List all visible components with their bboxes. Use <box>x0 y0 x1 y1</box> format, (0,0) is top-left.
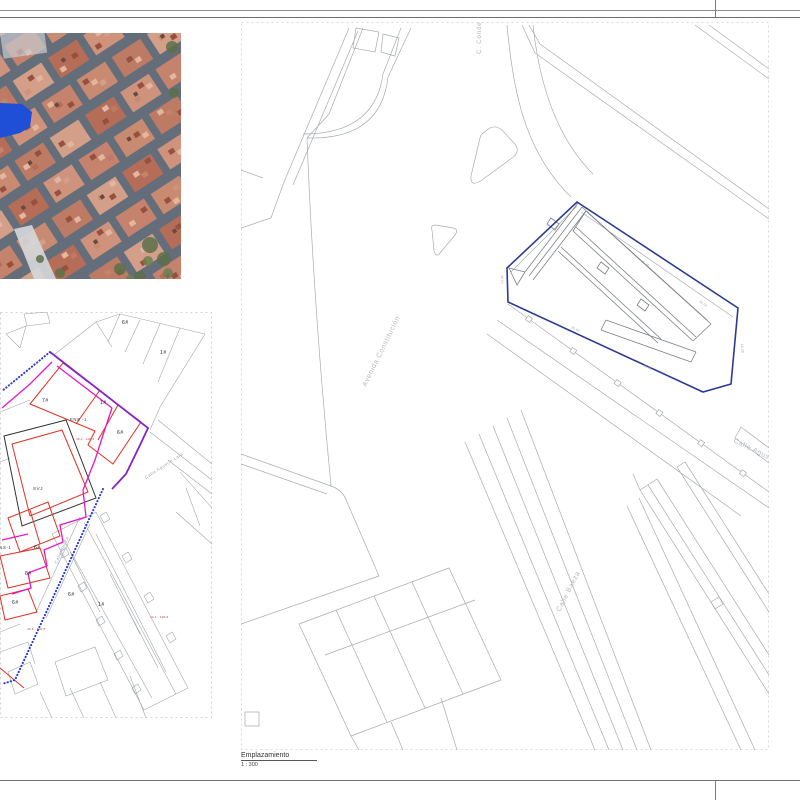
svg-text:43.6 - 100.8: 43.6 - 100.8 <box>27 627 46 631</box>
svg-text:Calle Baeza: Calle Baeza <box>53 536 69 565</box>
aerial-photo <box>0 33 181 279</box>
titleblock-bottom-rule <box>0 780 800 781</box>
svg-text:1#: 1# <box>160 350 167 356</box>
svg-text:Avenida Constitución: Avenida Constitución <box>362 315 402 388</box>
site-plan-linework <box>241 25 769 750</box>
svg-text:ENS -1: ENS -1 <box>70 417 87 422</box>
svg-text:16.20: 16.20 <box>740 344 745 353</box>
parcel-boundary <box>507 202 738 392</box>
drawing-title: Emplazamiento <box>241 752 317 761</box>
titleblock-top-rule-2 <box>0 17 800 18</box>
svg-text:6#: 6# <box>12 600 19 606</box>
svg-text:1#: 1# <box>100 400 107 406</box>
titleblock-top-rule-1 <box>0 10 800 11</box>
svg-text:13.40: 13.40 <box>500 275 504 284</box>
svg-text:46.4 - 100.9: 46.4 - 100.9 <box>76 437 95 441</box>
svg-text:6#: 6# <box>34 545 41 551</box>
drawing-caption: Emplazamiento 1 : 300 <box>241 752 317 768</box>
svg-text:6#: 6# <box>68 592 75 598</box>
street-name-labels: Avenida ConstituciónC. Conde LCalle Agus… <box>362 22 769 613</box>
drawing-scale: 1 : 300 <box>241 762 317 768</box>
plan-sheet: 6#1#7#1#ENS -16#SVJENS-16#6#6#6#1#Calle … <box>0 0 800 800</box>
svg-text:1#: 1# <box>98 602 105 608</box>
blue-dotted-boundary <box>2 352 103 684</box>
svg-text:C. Conde L: C. Conde L <box>476 22 483 54</box>
svg-text:25.36: 25.36 <box>640 259 650 267</box>
svg-text:7#: 7# <box>42 398 49 404</box>
svg-text:30.24: 30.24 <box>698 299 708 307</box>
svg-text:Calle Agustín Lara: Calle Agustín Lara <box>144 451 185 480</box>
svg-text:19.95: 19.95 <box>643 363 653 371</box>
svg-text:ENS-1: ENS-1 <box>0 545 11 550</box>
svg-text:6#: 6# <box>25 571 32 577</box>
subject-building <box>509 203 711 362</box>
zoning-plan: 6#1#7#1#ENS -16#SVJENS-16#6#6#6#1#Calle … <box>0 312 212 718</box>
svg-text:SVJ: SVJ <box>33 486 43 491</box>
red-parcel-outlines <box>0 363 141 688</box>
zoning-plan-labels: 6#1#7#1#ENS -16#SVJENS-16#6#6#6#1#Calle … <box>0 320 184 608</box>
svg-text:Calle Agustín Lara: Calle Agustín Lara <box>732 438 769 474</box>
titleblock-bottom-divider <box>715 780 716 800</box>
svj-boundary <box>4 420 96 526</box>
titleblock-top-divider <box>715 0 716 17</box>
site-plan: 25.3630.2413.4025.6019.9516.20 Avenida C… <box>241 22 769 750</box>
svg-text:44.1 - 100.9: 44.1 - 100.9 <box>150 615 169 619</box>
svg-text:6#: 6# <box>117 430 124 436</box>
svg-text:6#: 6# <box>122 320 129 326</box>
